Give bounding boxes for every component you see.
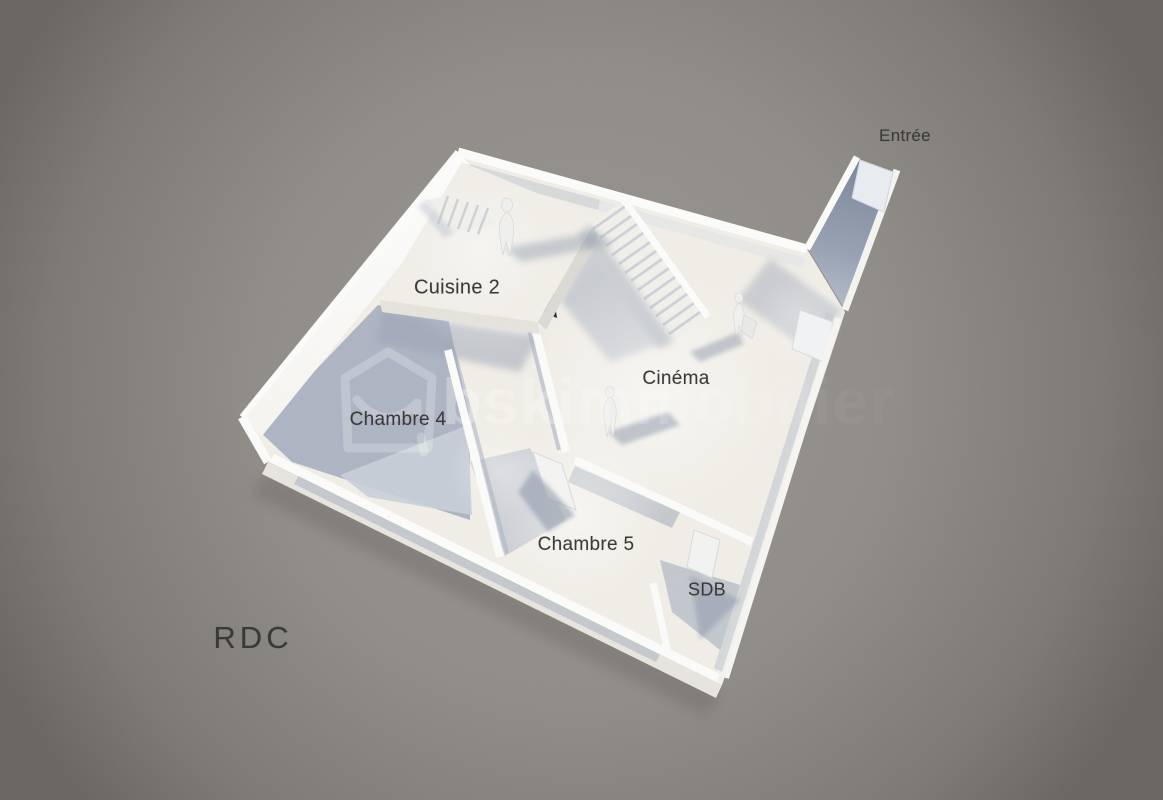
label-cinema: Cinéma [642,368,709,390]
floor-plan-scene: bskimmobilier Entrée Cuisine 2 Cinéma Ch… [0,0,1163,800]
floorplan-3d-render: bskimmobilier [0,0,1163,800]
label-entree: Entrée [879,126,931,146]
render-grain [0,0,1163,800]
floor-title: RDC [213,620,292,656]
label-cuisine: Cuisine 2 [414,277,500,300]
label-sdb: SDB [688,580,726,601]
label-chambre-4: Chambre 4 [350,409,447,431]
label-chambre-5: Chambre 5 [538,534,635,556]
